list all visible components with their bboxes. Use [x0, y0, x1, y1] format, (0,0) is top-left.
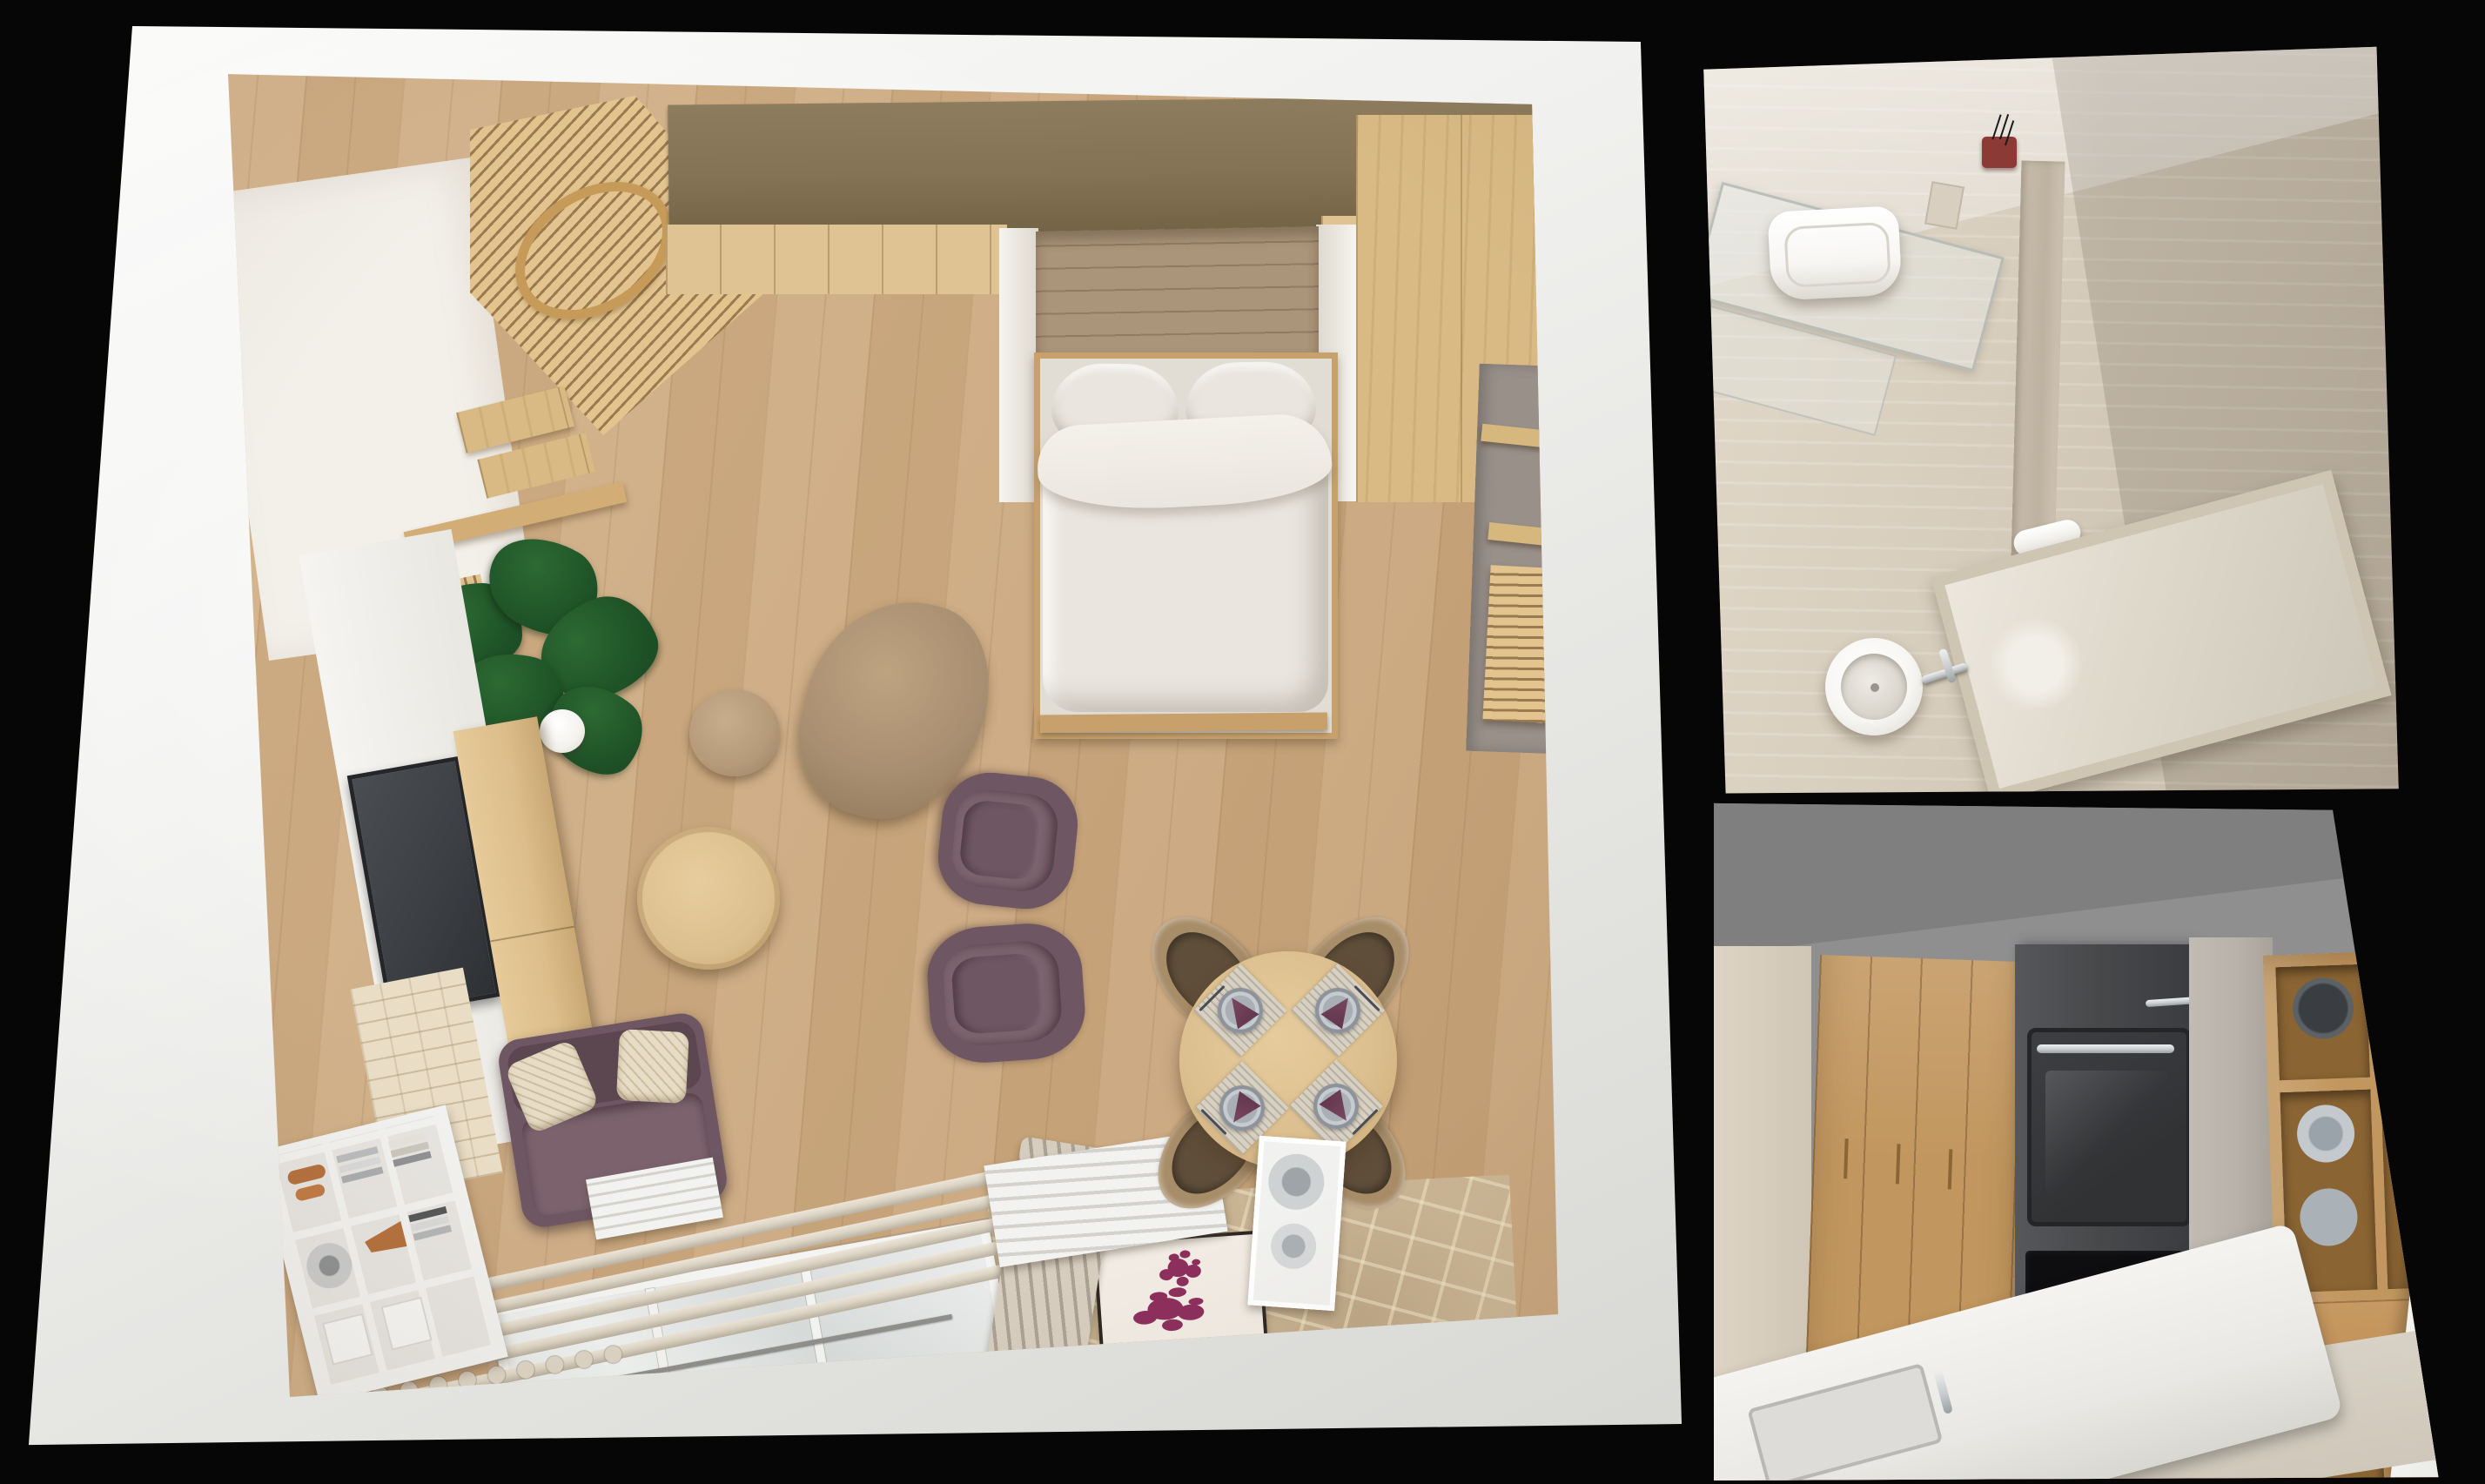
pan	[2292, 977, 2354, 1039]
oven-glass	[2045, 1071, 2167, 1192]
kitchen-walls	[1667, 796, 2450, 1484]
flush-plate	[1924, 181, 1964, 230]
stacked-plates	[2397, 1100, 2456, 1159]
countertop-sink	[1747, 1363, 1943, 1484]
kitchen-panel	[1667, 796, 2450, 1484]
toilet-seat-line	[1783, 222, 1891, 287]
mirror-reflection	[1977, 606, 2094, 723]
built-in-oven	[2027, 1028, 2191, 1226]
cabinet-handle	[1948, 1149, 1953, 1189]
render-stage	[0, 0, 2485, 1484]
vessel-sink	[1825, 638, 1923, 735]
living-room-panel	[17, 17, 1697, 1462]
stacked-plates	[2296, 1104, 2355, 1163]
shelf-cell-plates	[2381, 1086, 2478, 1289]
sink-drain	[1870, 683, 1879, 692]
bathroom-panel	[1667, 39, 2402, 796]
cabinet-handle	[1896, 1144, 1901, 1184]
wall-hung-toilet	[1767, 205, 1902, 301]
bathroom-travertine	[1667, 39, 2402, 796]
shelf-cell	[2275, 964, 2369, 1081]
shelf-cell	[2376, 961, 2470, 1078]
cabinet-handle	[1844, 1138, 1849, 1178]
kitchen-faucet	[1933, 1368, 1953, 1414]
oven-handle	[2037, 1044, 2174, 1053]
reed-diffuser	[1982, 137, 2017, 168]
